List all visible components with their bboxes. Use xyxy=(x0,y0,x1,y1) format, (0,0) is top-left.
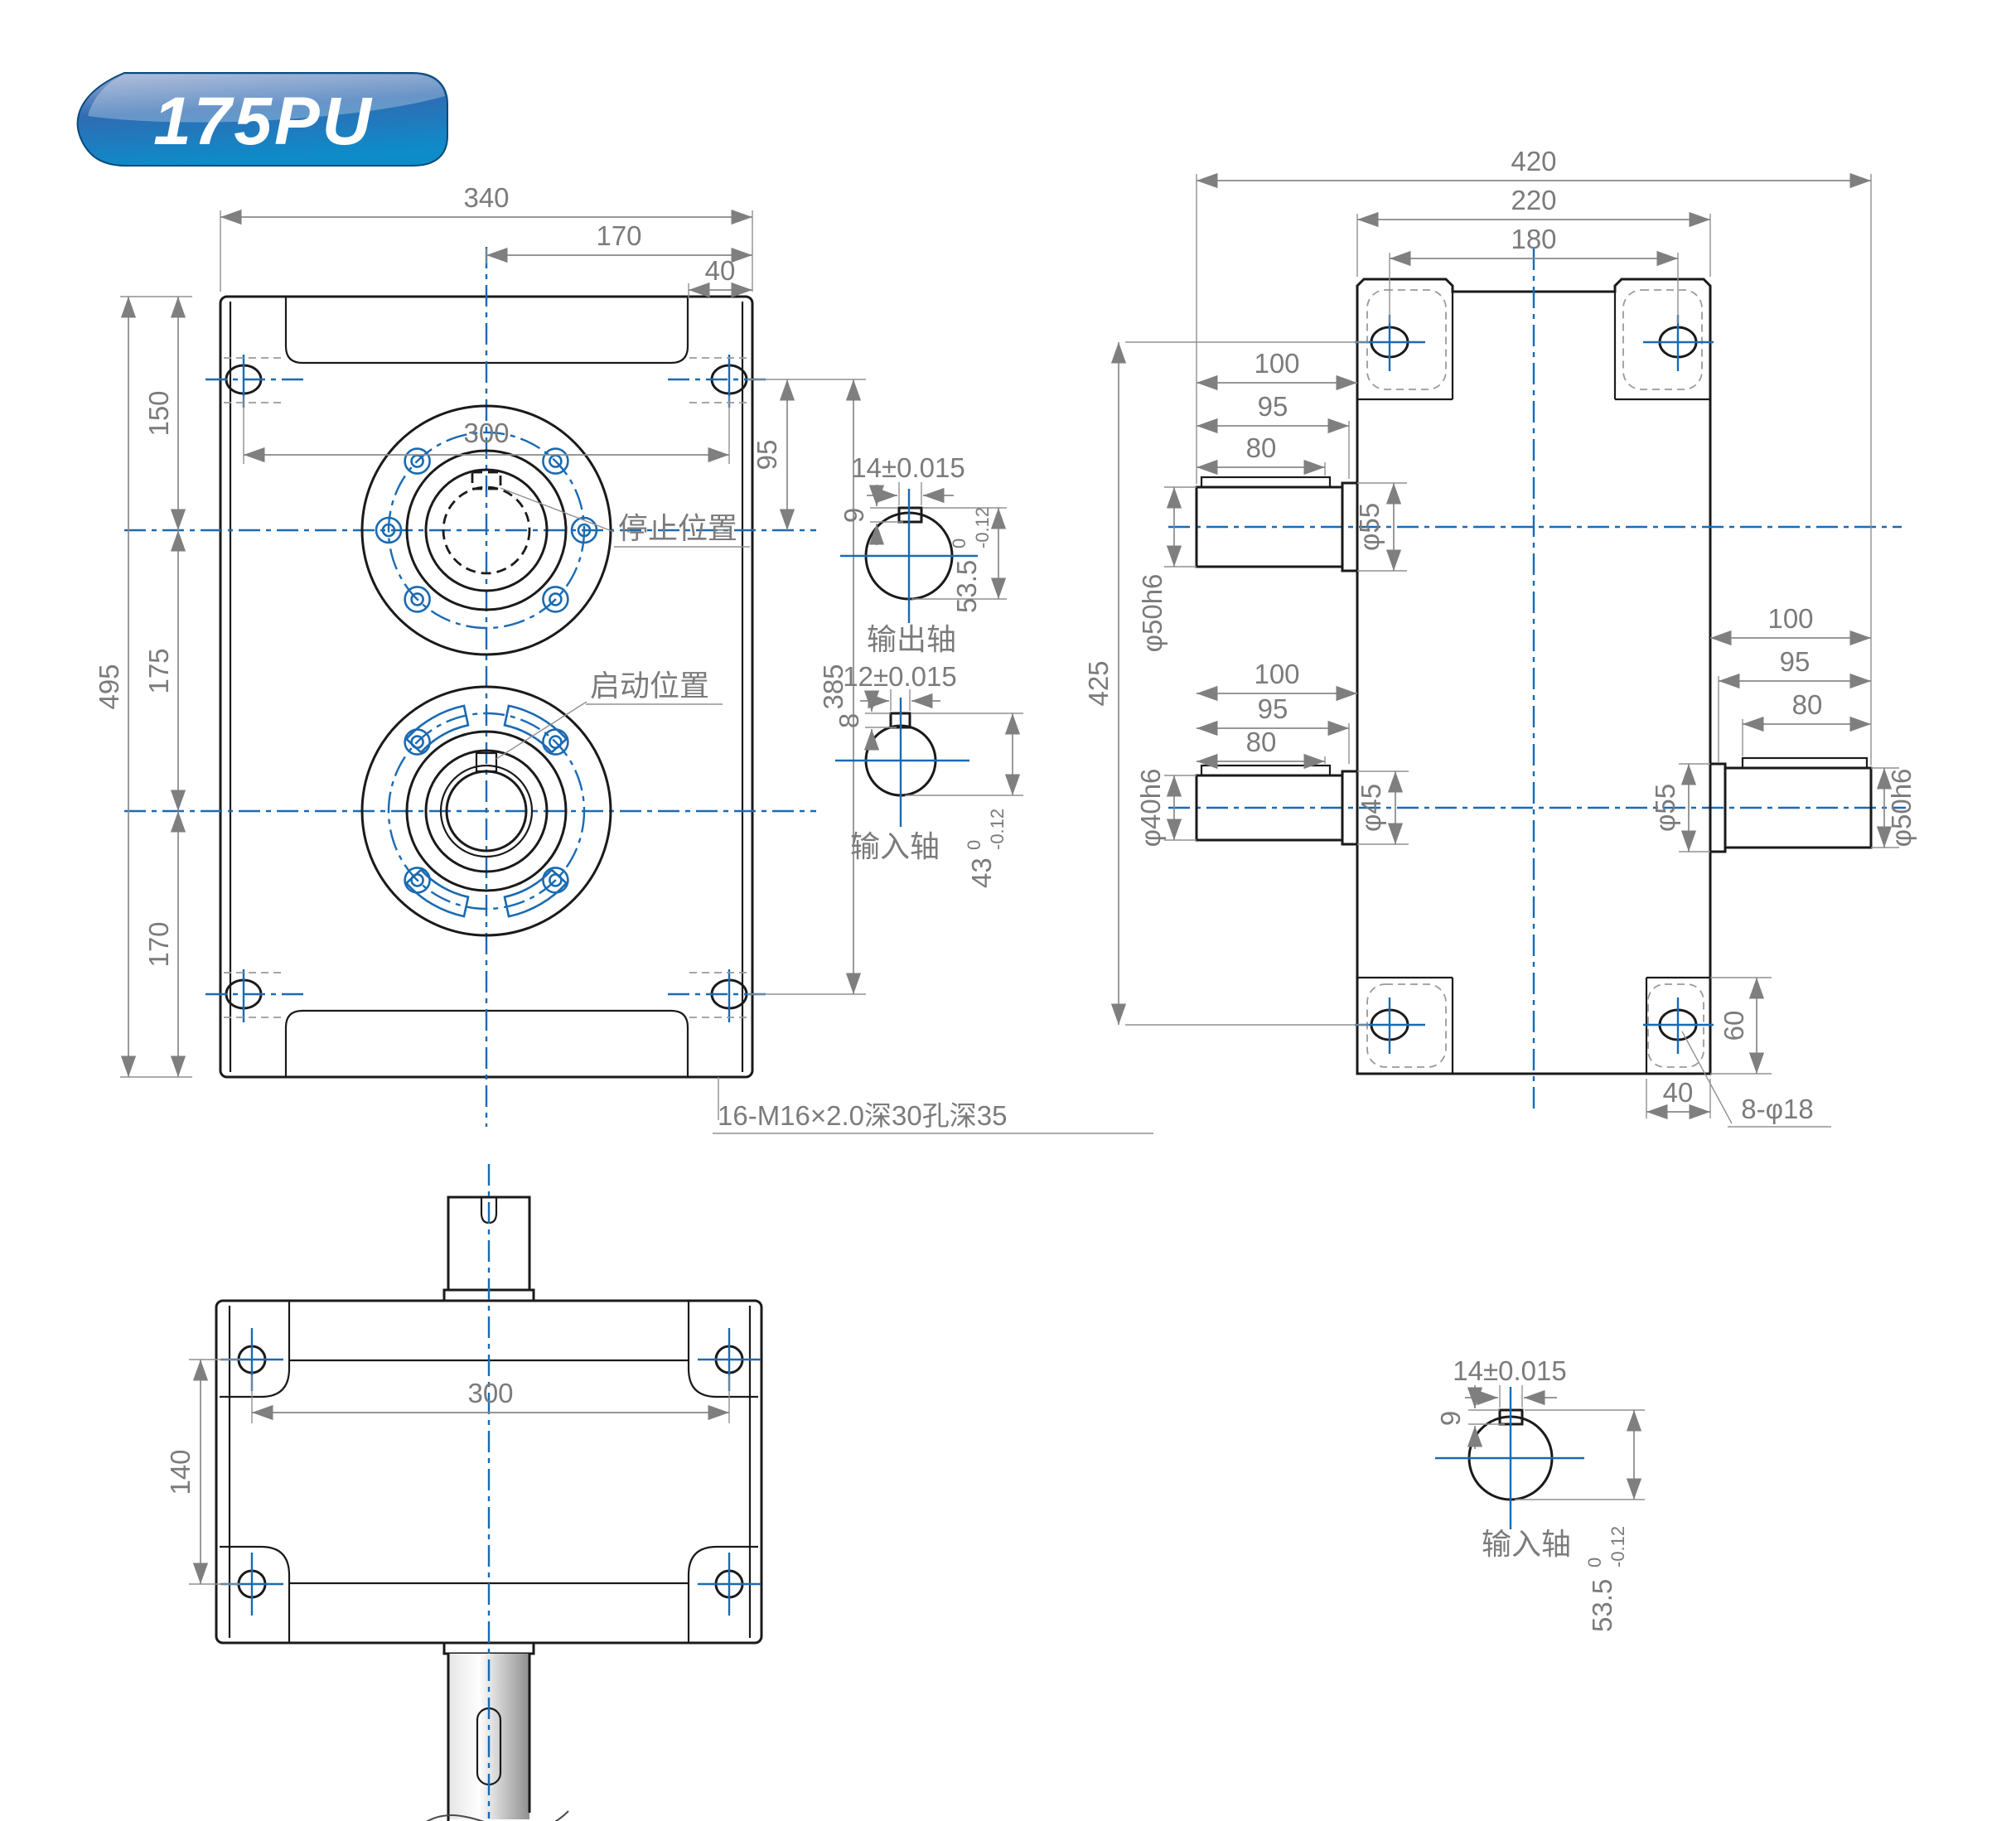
dim-across-flat-53-5: 53.5 xyxy=(951,560,982,613)
dim-53-5-tol-upper: 0 xyxy=(949,539,969,548)
dim-53-5b-tol-lower: -0.12 xyxy=(1607,1526,1628,1567)
dim-300b: 300 xyxy=(467,1378,513,1408)
drawing-page: 175PU xyxy=(0,0,2016,1821)
dim-95: 95 xyxy=(752,440,782,471)
dim-key-width-14b: 14±0.015 xyxy=(1453,1355,1566,1386)
lower-dia-boss: φ45 xyxy=(1356,784,1386,832)
dim-across-flat-43: 43 xyxy=(966,857,997,888)
upper-dim-95: 95 xyxy=(1258,391,1288,422)
dim-150: 150 xyxy=(143,390,174,436)
right-dim-80: 80 xyxy=(1792,689,1823,720)
bottom-input-shaft-label: 输入轴 xyxy=(1482,1527,1571,1561)
dim-40: 40 xyxy=(705,255,736,286)
dim-key-width-14: 14±0.015 xyxy=(851,452,964,483)
output-shaft-label: 输出轴 xyxy=(867,622,956,656)
technical-drawing-175pu: 175PU xyxy=(0,0,2016,1821)
right-dia-boss: φ55 xyxy=(1650,784,1680,832)
mounting-note: 16-M16×2.0深30孔深35 xyxy=(718,1100,1007,1131)
right-dim-100: 100 xyxy=(1767,603,1813,634)
dim-180: 180 xyxy=(1511,224,1556,254)
dim-key-height-9b: 9 xyxy=(1435,1411,1466,1426)
upper-dim-100: 100 xyxy=(1254,348,1299,379)
dim-key-width-12: 12±0.015 xyxy=(843,661,956,692)
upper-dia-shaft: φ50h6 xyxy=(1137,574,1168,653)
dim-340: 340 xyxy=(463,182,509,213)
dim-175: 175 xyxy=(143,648,174,693)
dim-170b: 170 xyxy=(143,921,174,967)
dim-495: 495 xyxy=(94,664,124,709)
dim-140: 140 xyxy=(165,1449,196,1495)
dim-170: 170 xyxy=(596,220,641,251)
lower-dia-shaft: φ40h6 xyxy=(1135,769,1166,848)
holes-note: 8-φ18 xyxy=(1741,1094,1813,1124)
input-shaft-label: 输入轴 xyxy=(850,829,940,863)
right-dim-95: 95 xyxy=(1780,646,1811,677)
dim-across-flat-53-5b: 53.5 xyxy=(1587,1579,1617,1632)
lower-dim-95: 95 xyxy=(1258,693,1288,724)
dim-key-height-8: 8 xyxy=(834,713,864,728)
start-position-label: 启动位置 xyxy=(590,669,709,703)
dim-420: 420 xyxy=(1511,146,1556,176)
right-dia-shaft: φ50h6 xyxy=(1886,769,1917,848)
upper-dia-boss: φ55 xyxy=(1354,503,1385,551)
dim-key-height-9: 9 xyxy=(839,508,869,523)
model-badge: 175PU xyxy=(78,73,447,166)
dim-43-tol-upper: 0 xyxy=(964,840,984,850)
stop-position-label: 停止位置 xyxy=(618,511,737,545)
dim-425: 425 xyxy=(1083,660,1114,706)
upper-dim-80: 80 xyxy=(1246,432,1277,463)
dim-53-5b-tol-upper: 0 xyxy=(1584,1558,1605,1567)
dim-300: 300 xyxy=(463,418,509,448)
badge-model-text: 175PU xyxy=(153,84,374,159)
dim-40b: 40 xyxy=(1663,1077,1694,1108)
lower-dim-80: 80 xyxy=(1246,727,1277,757)
dim-220: 220 xyxy=(1511,185,1556,215)
dim-53-5-tol-lower: -0.12 xyxy=(972,507,993,548)
dim-43-tol-lower: -0.12 xyxy=(987,809,1008,850)
page-background xyxy=(0,0,2016,1821)
lower-dim-100: 100 xyxy=(1254,659,1299,689)
dim-60: 60 xyxy=(1719,1011,1749,1041)
